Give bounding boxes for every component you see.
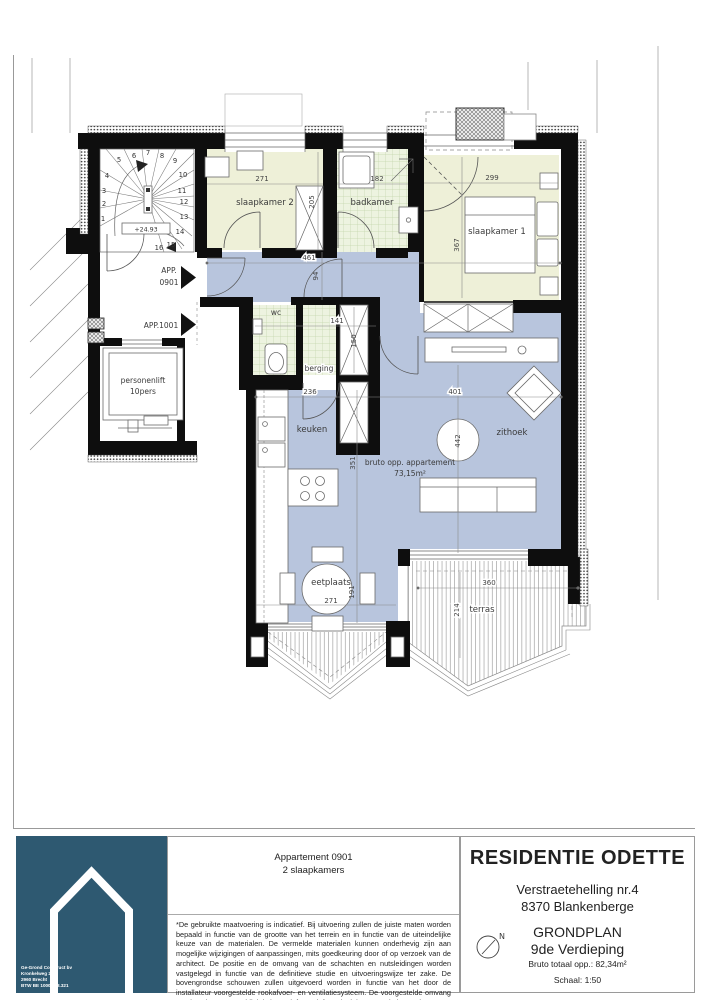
svg-text:1: 1 — [101, 215, 105, 223]
dim-living-depth: 351 — [349, 456, 357, 469]
svg-text:7: 7 — [146, 149, 150, 157]
svg-text:13: 13 — [180, 213, 189, 221]
apartment-bedrooms: 2 slaapkamers — [168, 864, 459, 877]
titleblock-apartment-box: Appartement 0901 2 slaapkamers *De gebru… — [167, 836, 460, 993]
sideboard — [425, 338, 558, 362]
level-marker: +24.93 — [134, 227, 157, 234]
project-address-street: Verstraetehelling nr.4 — [461, 881, 694, 898]
pillar-grid — [251, 637, 264, 657]
bay-window-hatch — [260, 632, 396, 684]
dim-shaft: 150 — [350, 334, 358, 347]
wall-vent — [88, 318, 104, 329]
dim-bad-width: 182 — [370, 175, 383, 183]
svg-text:9: 9 — [173, 157, 177, 165]
north-letter: N — [499, 932, 505, 941]
apartment-ref-1b: 0901 — [159, 278, 178, 287]
room-label-terras: terras — [469, 605, 495, 615]
dim-living-circle: 442 — [454, 434, 462, 447]
titleblock-project-box: RESIDENTIE ODETTE Verstraetehelling nr.4… — [460, 836, 695, 993]
sofa — [420, 478, 536, 512]
svg-text:8: 8 — [160, 152, 164, 160]
dim-wc-width: 141 — [330, 317, 343, 325]
dim-hall-width: 461 — [302, 254, 315, 262]
room-label-eetplaats: eetplaats — [311, 578, 351, 588]
svg-text:4: 4 — [105, 172, 109, 180]
disclaimer-text: *De gebruikte maatvoering is indicatief.… — [168, 915, 459, 1000]
apartment-ref-1a: APP. — [161, 266, 176, 275]
dim-eetplaats-width: 271 — [324, 597, 337, 605]
wall-vent — [88, 332, 104, 343]
room-label-zithoek: zithoek — [497, 428, 528, 438]
room-label-wc: wc — [271, 308, 281, 317]
svg-text:3: 3 — [102, 187, 106, 195]
north-arrow-icon: N — [475, 929, 515, 966]
logo-vat: BTW BE 1000.008.321 — [21, 983, 72, 989]
company-logo: Ge-Grond Construct bv Kronkelweg 2b 2960… — [16, 836, 167, 993]
dim-living-width: 401 — [448, 388, 461, 396]
project-name: RESIDENTIE ODETTE — [461, 847, 694, 870]
room-label-badkamer: badkamer — [351, 198, 394, 208]
room-label-berging: berging — [305, 364, 334, 373]
apartment-number: Appartement 0901 — [168, 851, 459, 864]
dim-keuken-width: 236 — [303, 388, 317, 396]
gross-area-label: bruto opp. appartement — [365, 458, 455, 467]
svg-text:6: 6 — [132, 152, 136, 160]
washbasin — [399, 207, 418, 233]
dim-hall-depth: 94 — [312, 271, 320, 280]
svg-text:15: 15 — [167, 241, 176, 249]
room-label-slaapkamer1: slaapkamer 1 — [468, 227, 526, 237]
lift-label-1: personenlift — [121, 376, 166, 385]
room-label-keuken: keuken — [297, 425, 327, 435]
bathtub — [339, 152, 374, 188]
room-label-slaapkamer2: slaapkamer 2 — [236, 198, 294, 208]
dim-sk2-width: 271 — [255, 175, 268, 183]
wardrobe-bedroom1 — [424, 304, 513, 332]
apartment-ref-2: APP.1001 — [144, 321, 179, 330]
svg-text:10: 10 — [179, 171, 188, 179]
pillar-grid — [391, 637, 404, 657]
svg-text:5: 5 — [117, 156, 121, 164]
svg-text:11: 11 — [178, 187, 187, 195]
apartment-ref-arrows — [181, 266, 196, 336]
dim-terras-depth: 214 — [453, 603, 461, 617]
svg-text:16: 16 — [155, 244, 164, 252]
staircase — [100, 149, 194, 271]
dim-sk2-depth: 205 — [308, 195, 316, 208]
lift-label-2: 10pers — [130, 387, 156, 396]
svg-text:2: 2 — [102, 200, 106, 208]
chimney-shaft — [456, 108, 504, 140]
gross-area-value: 73,15m² — [394, 469, 426, 478]
drawing-page: 271 205 182 299 367 461 94 141 150 236 4… — [0, 0, 707, 1000]
scale-label: Schaal: 1:50 — [461, 975, 694, 985]
dim-sk1-depth: 367 — [453, 238, 461, 251]
project-address-city: 8370 Blankenberge — [461, 898, 694, 915]
svg-text:14: 14 — [176, 228, 185, 236]
dim-sk1-width: 299 — [485, 174, 498, 182]
floor-plan-svg: 271 205 182 299 367 461 94 141 150 236 4… — [0, 0, 707, 830]
svg-text:12: 12 — [180, 198, 189, 206]
dim-terras-width: 360 — [482, 579, 495, 587]
dining-table — [302, 564, 352, 614]
